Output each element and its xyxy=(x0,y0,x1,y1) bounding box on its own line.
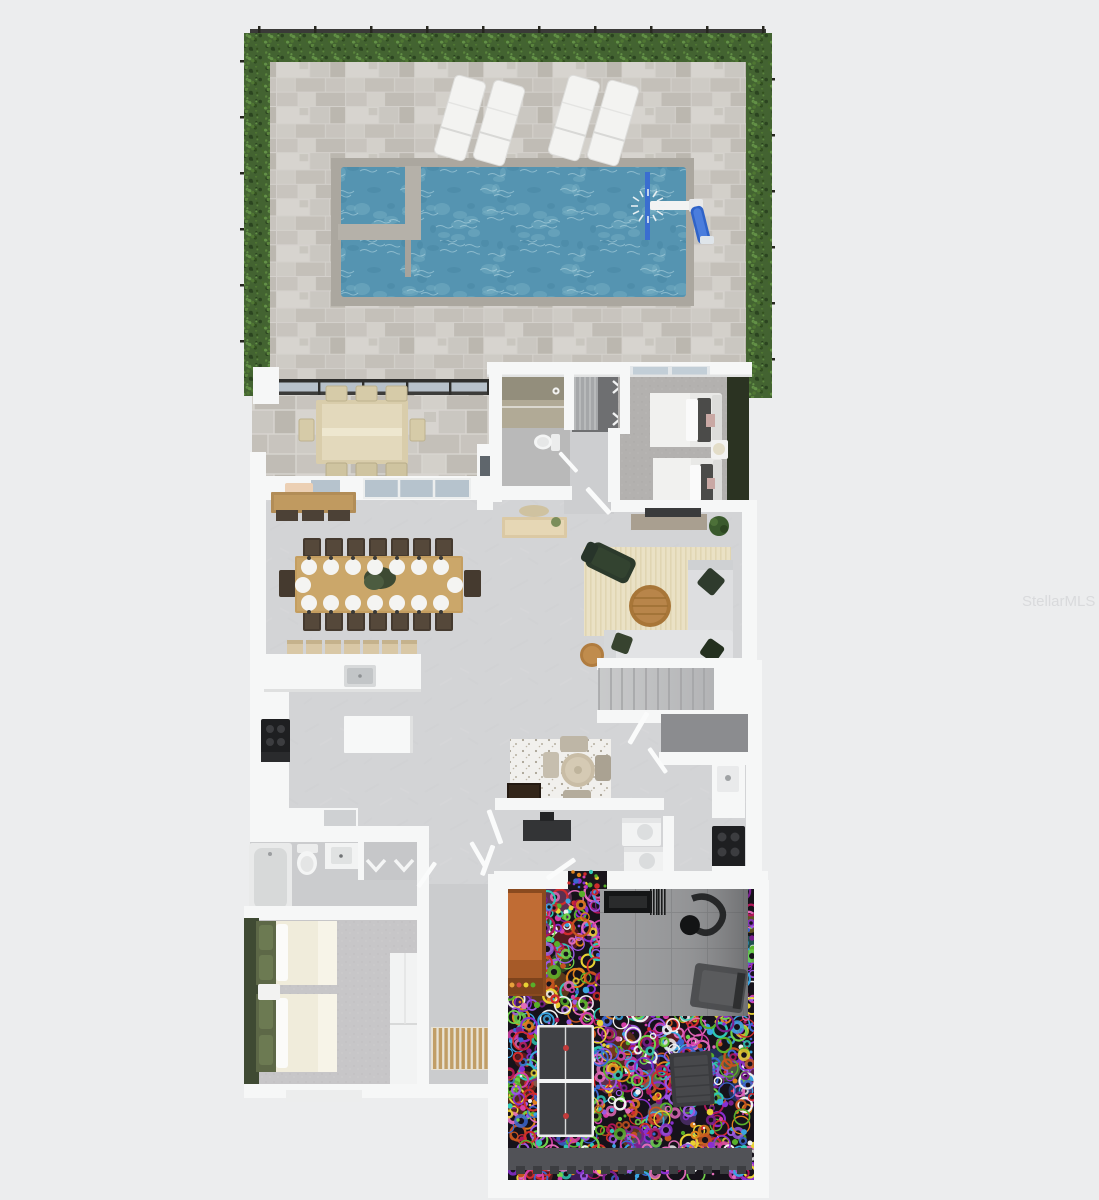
svg-text:StellarMLS: StellarMLS xyxy=(1022,593,1095,610)
